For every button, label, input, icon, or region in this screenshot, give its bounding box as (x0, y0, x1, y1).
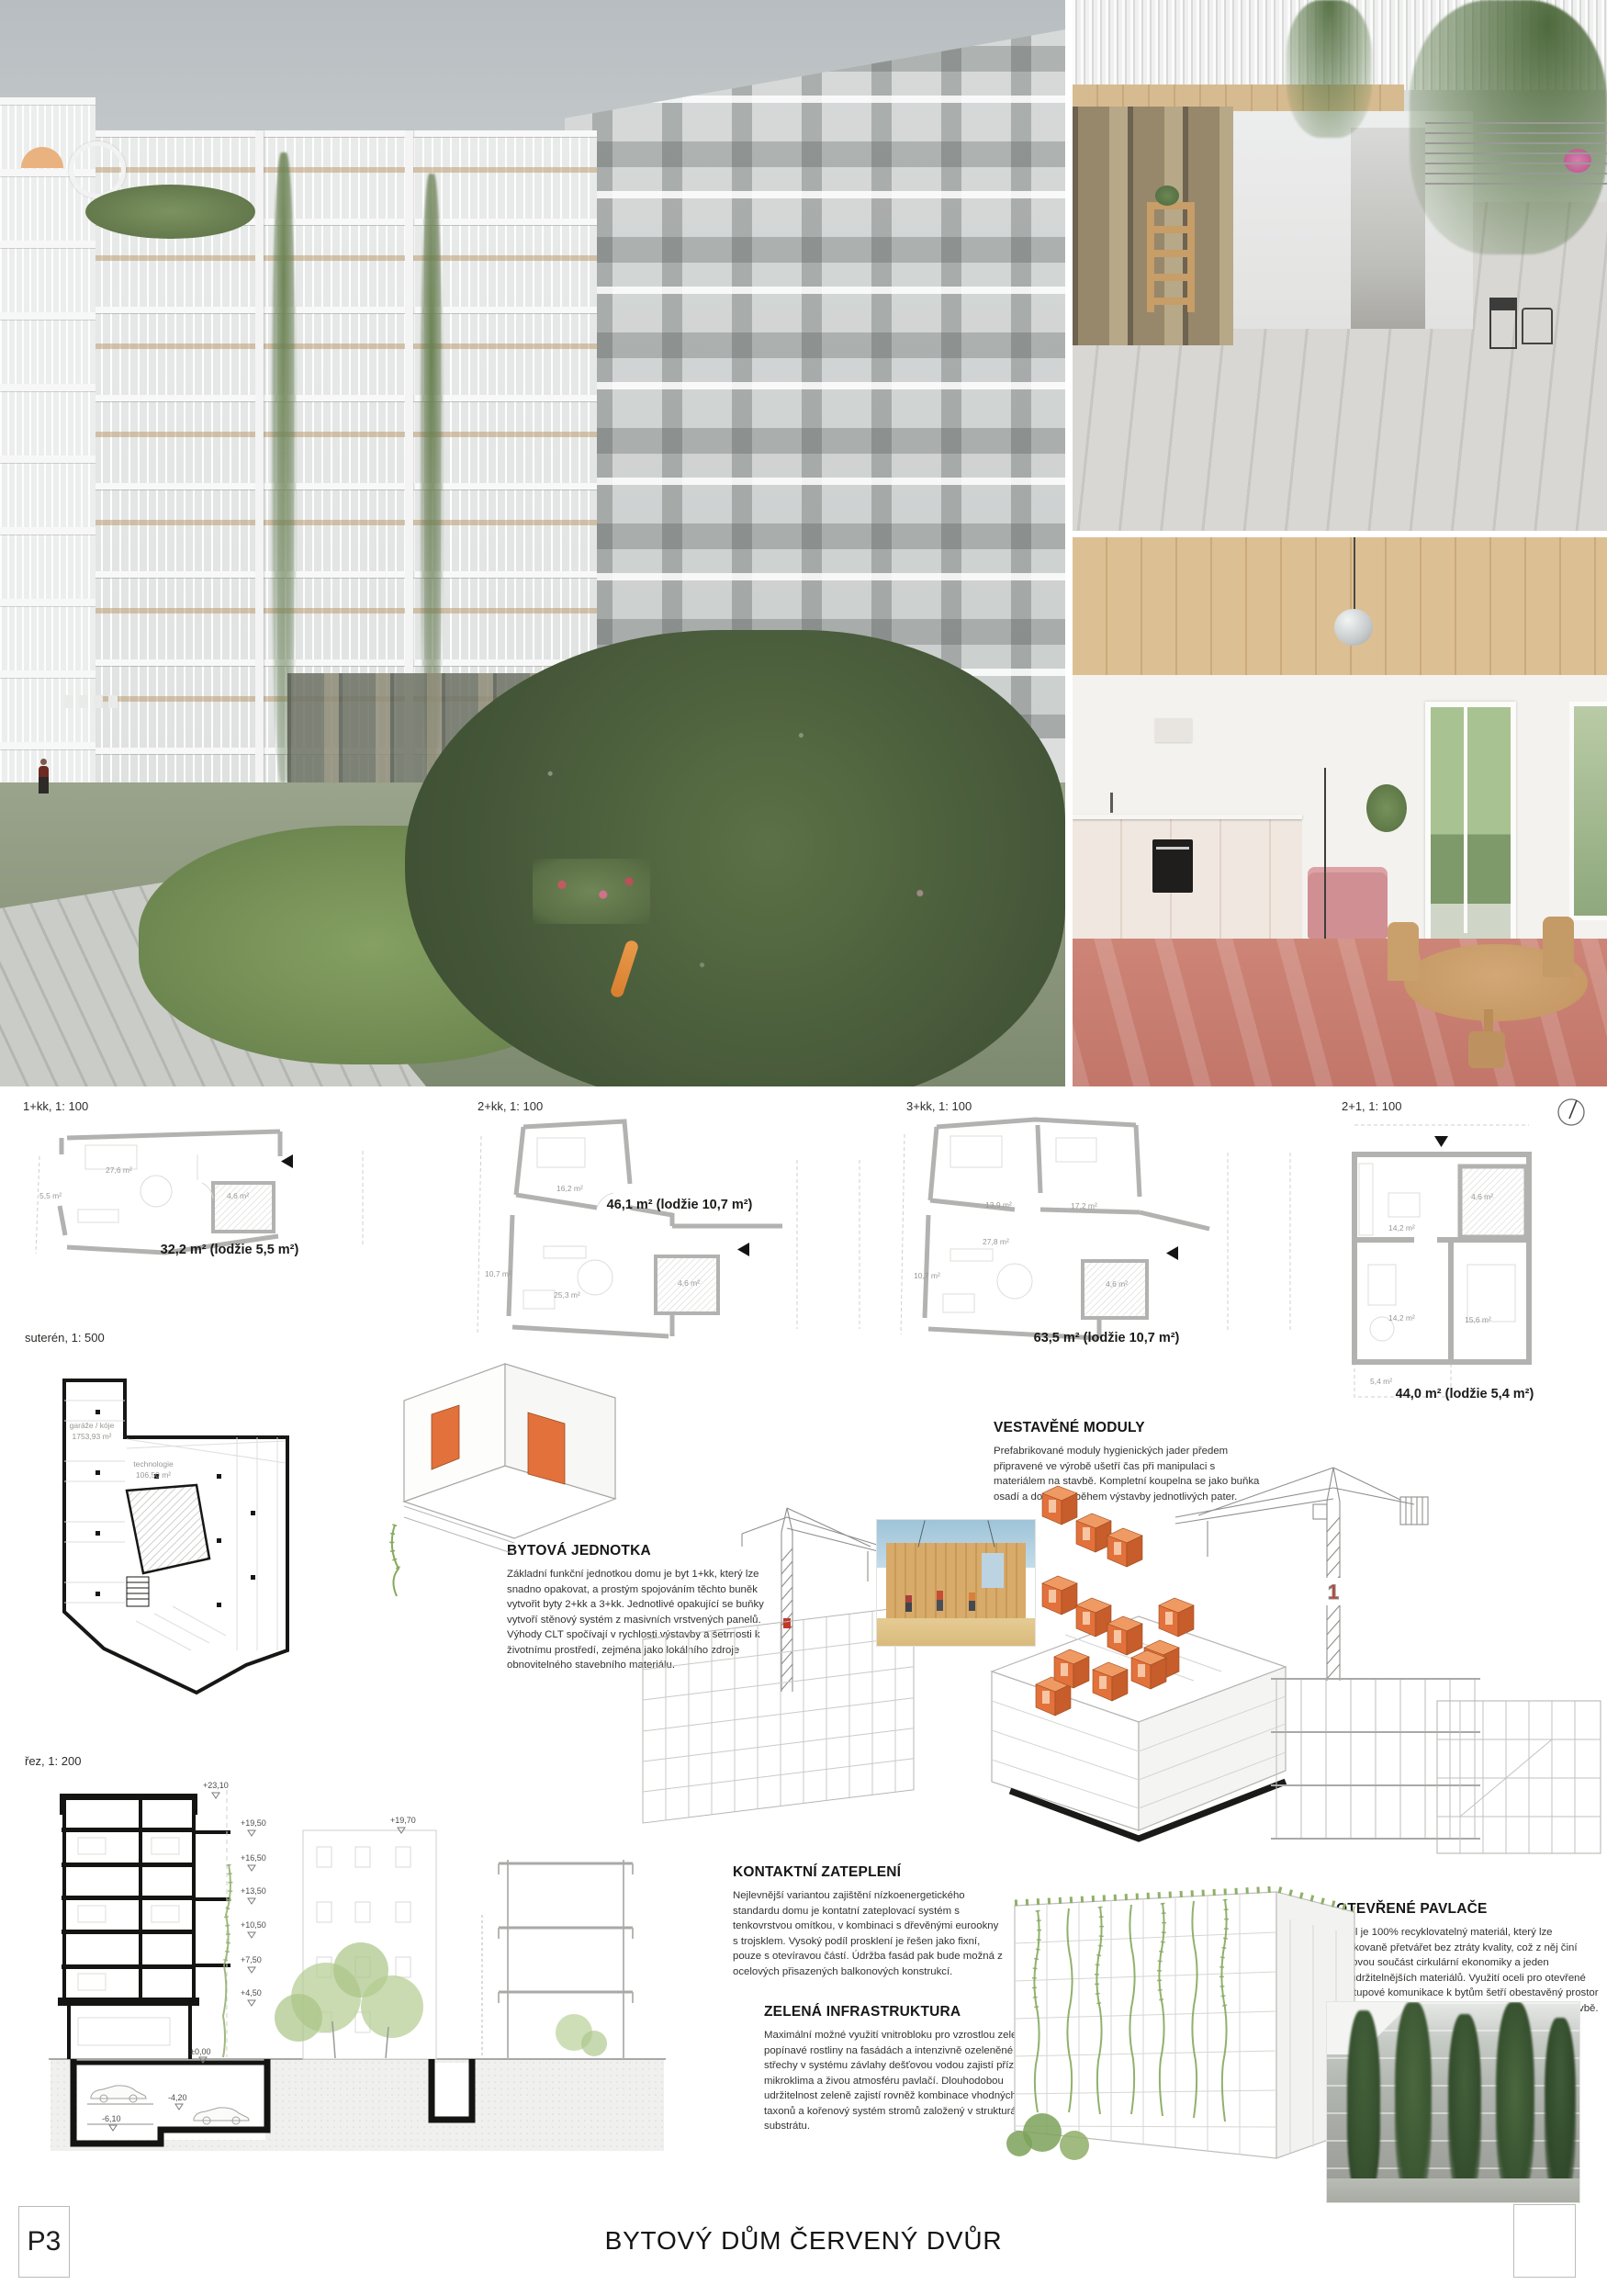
photo-paving (1327, 2178, 1579, 2202)
tech-name: technologie (133, 1459, 174, 1469)
bathroom (1083, 1261, 1147, 1318)
garage-name: garáže / kóje (70, 1421, 115, 1430)
wood-ceiling (1073, 537, 1607, 675)
window-right (1569, 702, 1607, 919)
plan-caption: 32,2 m² (lodžie 5,5 m²) (161, 1243, 299, 1257)
building-right-wing (565, 0, 1065, 738)
chair (1388, 922, 1419, 981)
section-label: řez, 1: 200 (25, 1754, 81, 1768)
plan-label: 1+kk, 1: 100 (23, 1099, 88, 1113)
room-area: 16,2 m² (556, 1184, 583, 1193)
axon-building-modules (992, 1616, 1286, 1839)
plan-caption: 63,5 m² (lodžie 10,7 m²) (1034, 1331, 1180, 1345)
plant-ladder (1147, 202, 1195, 312)
photo-worker (937, 1591, 943, 1611)
block-body: Nejlevnější variantou zajištění nízkoene… (733, 1888, 1004, 1979)
render-interior (1073, 537, 1607, 1086)
room-area: 4,6 m² (678, 1278, 700, 1288)
pendant-lamp (1334, 609, 1373, 646)
houseplant (1366, 784, 1407, 832)
room-area: 4,6 m² (1106, 1279, 1128, 1289)
room-area: 4,6 m² (227, 1191, 249, 1200)
photo-vine-column (1448, 2014, 1481, 2202)
section-garage: ±0,00 -4,20 -6,10 (73, 2047, 267, 2144)
oven (1152, 839, 1193, 893)
furniture (523, 1138, 613, 1309)
chair (1543, 917, 1574, 977)
french-door (1425, 702, 1516, 943)
board-title: BYTOVÝ DŮM ČERVENÝ DVŮR (0, 2226, 1607, 2256)
furniture (78, 1145, 213, 1222)
section-garage-right (432, 2059, 472, 2120)
bistro-chair (1489, 298, 1517, 349)
entry-marker (737, 1243, 749, 1256)
photo-clt-construction (877, 1520, 1035, 1646)
level-label: +16,50 (241, 1853, 266, 1863)
text-block-kontaktni-zatepleni: KONTAKTNÍ ZATEPLENÍ Nejlevnější varianto… (733, 1864, 1004, 1979)
section-building (58, 1790, 230, 2059)
gallery-railing (1425, 122, 1607, 191)
basement-label: suterén, 1: 500 (25, 1331, 105, 1345)
roof-terrace-greens (85, 185, 256, 239)
photo-worker (905, 1595, 912, 1612)
room-area: 10,7 m² (485, 1269, 511, 1278)
garage-level: -6,10 (102, 2114, 121, 2123)
pendant-lamp-cord (1354, 537, 1355, 614)
walkway-table-set (64, 695, 119, 708)
room-area: 27,6 m² (106, 1165, 132, 1175)
level-label: +13,50 (241, 1886, 266, 1896)
plan-label: 2+1, 1: 100 (1342, 1099, 1401, 1113)
floorplan-3kk: 3+kk, 1: 100 13,9 m² 17,2 m² 27,8 m² 10,… (886, 1097, 1332, 1382)
room-area: 13,9 m² (985, 1200, 1012, 1210)
basement-plan: suterén, 1: 500 garáže / kóje 1753,93 m²… (17, 1327, 320, 1713)
room-area: 17,2 m² (1071, 1201, 1097, 1210)
floor-lamp (1324, 768, 1326, 938)
text-block-otevrene-pavlace: OTEVŘENÉ PAVLAČE Ocel je 100% recyklovat… (1336, 1901, 1604, 2016)
room-area: 14,2 m² (1388, 1223, 1415, 1232)
stamp-box (1513, 2204, 1576, 2278)
garage-level: -4,20 (168, 2093, 187, 2102)
level-label: +23,10 (203, 1781, 229, 1790)
level-label: +4,50 (241, 1988, 262, 1998)
range-hood (1155, 718, 1192, 742)
neighbor-level: +19,70 (390, 1816, 416, 1825)
photo-pavlace-greenery (1327, 2002, 1579, 2202)
chair (1468, 1031, 1505, 1068)
plan-label: 3+kk, 1: 100 (906, 1099, 972, 1113)
oven-handle (1156, 847, 1189, 850)
room-area: 15,6 m² (1465, 1315, 1491, 1324)
garage-area: 1753,93 m² (73, 1432, 112, 1441)
level-label: +7,50 (241, 1955, 262, 1964)
photo-vine-column (1347, 2010, 1380, 2202)
bistro-table (1522, 308, 1553, 344)
room-area: 25,3 m² (554, 1290, 580, 1300)
axon-pavlac-frame (1437, 1701, 1601, 1853)
steel-column (255, 130, 264, 782)
large-shrub (405, 630, 1065, 1086)
level-labels: +23,10 +19,50 +16,50 +13,50 +10,50 +7,50… (203, 1781, 266, 2006)
photo-worker (969, 1593, 975, 1611)
plan-caption: 46,1 m² (lodžie 10,7 m²) (607, 1198, 753, 1212)
photo-ground (877, 1618, 1035, 1646)
furniture (943, 1136, 1096, 1312)
room-area: 5,5 m² (39, 1191, 62, 1200)
ground-level: ±0,00 (190, 2047, 210, 2056)
clt-module-axon (392, 1364, 615, 1596)
section-drawing: +19,70 +23,10 +19,50 +16,50 +13,50 (23, 1777, 684, 2163)
room-area: 4,6 m² (1471, 1192, 1493, 1201)
floorplan-2kk: 2+kk, 1: 100 16,2 m² 10,7 m² 25,3 m² 4,6… (459, 1097, 891, 1378)
plan-label: 2+kk, 1: 100 (478, 1099, 543, 1113)
photo-vine-column (1496, 2002, 1534, 2202)
north-compass (1550, 1091, 1592, 1133)
bathroom (1460, 1166, 1526, 1237)
bathroom (213, 1183, 274, 1232)
axon-green-facade (973, 1855, 1368, 2213)
faucet (1110, 793, 1113, 813)
floorplan-1kk: 1+kk, 1: 100 27,6 m² 5,5 m² 4,6 m² 32,2 … (14, 1097, 455, 1281)
level-label: +19,50 (241, 1818, 266, 1828)
room-area: 27,8 m² (983, 1237, 1009, 1246)
crane-number-badge: 1 (1328, 1581, 1339, 1604)
compass-needle (1569, 1100, 1577, 1119)
pink-sofa (1308, 867, 1388, 939)
flower-planters (533, 859, 650, 924)
photo-vine-column (1395, 2002, 1432, 2202)
entry-marker (1434, 1136, 1448, 1147)
person (39, 766, 49, 793)
counter-top (1073, 815, 1302, 819)
room-area: 14,2 m² (1388, 1313, 1415, 1322)
photo-wall-opening (982, 1553, 1004, 1588)
render-courtyard (0, 0, 1065, 1086)
axon-steel-frame-small (1271, 1679, 1480, 1840)
tech-area: 106,50 m² (136, 1470, 171, 1480)
hanging-vines (1287, 0, 1372, 138)
level-label: +10,50 (241, 1920, 266, 1930)
photo-vine-column (1545, 2018, 1576, 2202)
block-title: OTEVŘENÉ PAVLAČE (1336, 1901, 1604, 1918)
entry-marker (1166, 1246, 1178, 1260)
block-title: KONTAKTNÍ ZATEPLENÍ (733, 1864, 1004, 1881)
presentation-board: 1+kk, 1: 100 27,6 m² 5,5 m² 4,6 m² 32,2 … (0, 0, 1607, 2296)
room-area: 10,7 m² (914, 1271, 940, 1280)
crane-left-icon (742, 1508, 889, 1692)
person-head (40, 759, 47, 765)
entry-marker (281, 1154, 293, 1168)
building-left-frame (0, 97, 96, 858)
render-walkway (1073, 0, 1607, 531)
door-mullion (1464, 702, 1467, 932)
